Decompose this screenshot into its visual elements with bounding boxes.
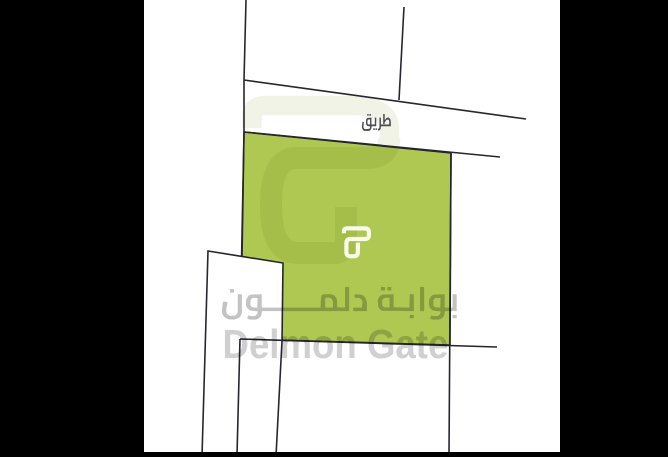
svg-text:Delmon Gate: Delmon Gate [223, 322, 449, 367]
